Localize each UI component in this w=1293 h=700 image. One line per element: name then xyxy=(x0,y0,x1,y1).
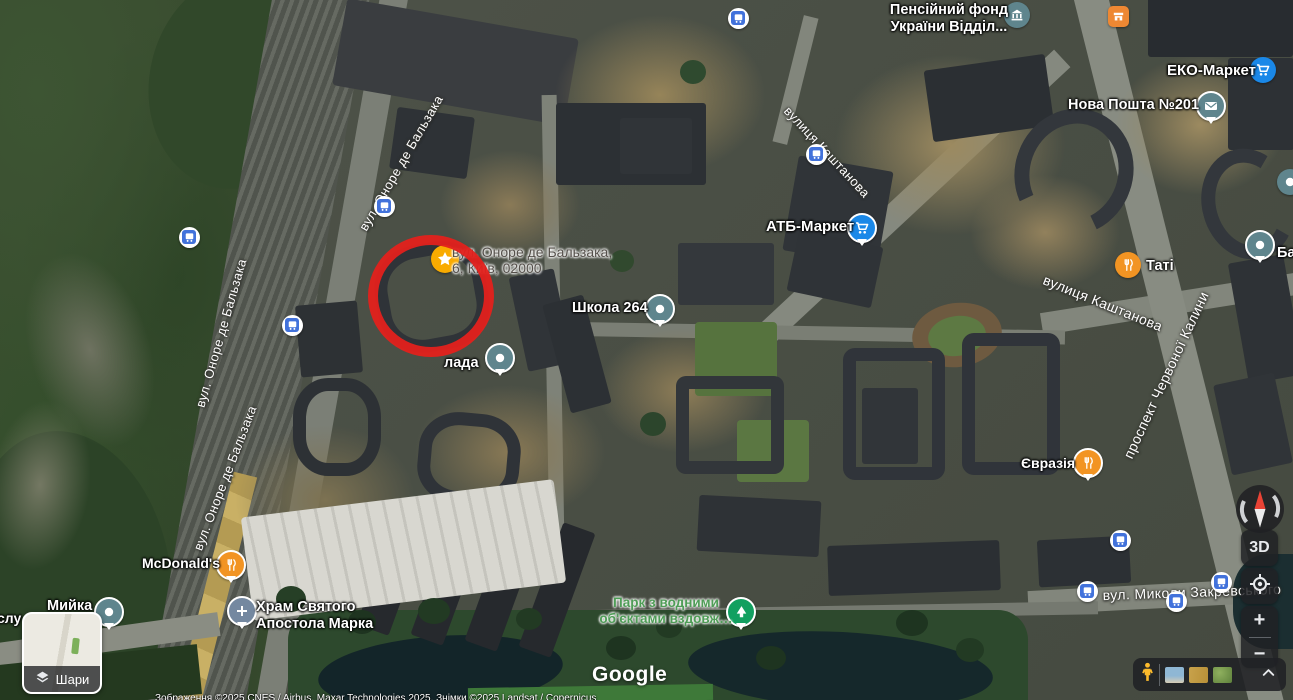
layers-button[interactable]: Шари xyxy=(22,612,102,694)
zoom-in-button[interactable]: + xyxy=(1254,608,1266,632)
poi-nova-poshta-label[interactable]: Нова Пошта №201 xyxy=(1068,97,1199,114)
building xyxy=(1228,254,1293,384)
transit-stop-icon[interactable] xyxy=(728,8,749,29)
building xyxy=(620,118,692,174)
tree xyxy=(418,598,450,624)
ring-building xyxy=(676,376,784,474)
building xyxy=(1148,0,1293,57)
poi-mcdonalds-label[interactable]: McDonald's xyxy=(142,555,220,571)
dot-icon[interactable] xyxy=(1245,230,1275,260)
tree xyxy=(680,60,706,84)
layers-thumbnail-detail xyxy=(71,638,80,655)
imagery-thumbnail-2[interactable] xyxy=(1189,667,1208,683)
layers-icon xyxy=(35,670,50,688)
dot-icon[interactable] xyxy=(645,294,675,324)
transit-stop-icon[interactable] xyxy=(1077,581,1098,602)
poi-park-label[interactable]: Парк з воднимиоб'єктами вздовж… xyxy=(599,595,732,626)
red-circle-annotation xyxy=(368,235,494,357)
poi-atb-market-label[interactable]: АТБ-Маркет xyxy=(766,218,854,235)
imagery-bar xyxy=(1133,658,1286,691)
ring-building xyxy=(293,378,381,476)
building xyxy=(678,243,774,305)
imagery-thumbnail-3[interactable] xyxy=(1213,667,1232,683)
tree xyxy=(956,638,984,662)
map-attribution: Зображення ©2025 CNES / Airbus, Maxar Te… xyxy=(155,693,596,700)
dot-icon[interactable] xyxy=(485,343,515,373)
tree xyxy=(610,250,634,272)
building xyxy=(295,300,363,377)
tree xyxy=(640,412,666,436)
transit-stop-icon[interactable] xyxy=(179,227,200,248)
building xyxy=(697,495,822,557)
poi-evrazia-label[interactable]: Євразія xyxy=(1021,455,1075,471)
ring-building xyxy=(962,333,1060,475)
transit-stop-icon[interactable] xyxy=(1110,530,1131,551)
building xyxy=(827,540,1001,596)
collapse-chevron-icon[interactable] xyxy=(1259,663,1278,687)
tree xyxy=(606,636,636,660)
transit-stop-icon[interactable] xyxy=(282,315,303,336)
transit-stop-icon[interactable] xyxy=(1166,591,1187,612)
poi-pension-fund-label[interactable]: Пенсійний фондУкраїни Відділ... xyxy=(890,2,1008,36)
poi-school-264-label[interactable]: Школа 264 xyxy=(572,300,648,317)
pegman-icon[interactable] xyxy=(1141,662,1154,688)
3d-button[interactable]: 3D xyxy=(1241,530,1278,566)
ring-building xyxy=(843,348,945,480)
poi-lada-label[interactable]: лада xyxy=(444,355,479,372)
poi-tati-label[interactable]: Таті xyxy=(1146,258,1174,275)
transit-stop-icon[interactable] xyxy=(374,196,395,217)
poi-khram-label[interactable]: Храм СвятогоАпостола Марка xyxy=(256,599,373,633)
clipped-poi-label: слу xyxy=(0,610,21,626)
shop-icon[interactable] xyxy=(1108,6,1129,27)
my-location-button[interactable] xyxy=(1241,568,1278,604)
layers-button-label: Шари xyxy=(56,672,90,687)
restaurant-icon[interactable] xyxy=(1115,252,1141,278)
poi-eko-market-label[interactable]: ЕКО-Маркет xyxy=(1167,62,1256,79)
restaurant-icon[interactable] xyxy=(1073,448,1103,478)
envelope-icon[interactable] xyxy=(1196,91,1226,121)
restaurant-icon[interactable] xyxy=(216,550,246,580)
zoom-divider xyxy=(1249,637,1271,638)
tree xyxy=(516,608,542,630)
imagery-thumbnail-1[interactable] xyxy=(1165,667,1184,683)
transit-stop-icon[interactable] xyxy=(1211,572,1232,593)
google-logo: Google xyxy=(592,663,667,687)
transit-stop-icon[interactable] xyxy=(806,144,827,165)
building xyxy=(1213,373,1293,476)
cross-icon[interactable] xyxy=(227,596,257,626)
tree xyxy=(896,610,928,636)
poi-ba-label[interactable]: Ба xyxy=(1277,245,1293,262)
map-canvas[interactable]: Шари 3D + − Google Зображення ©2025 CNES… xyxy=(0,0,1293,700)
tree xyxy=(756,646,786,670)
bar-divider xyxy=(1159,664,1160,686)
my-location-icon xyxy=(1249,573,1271,600)
